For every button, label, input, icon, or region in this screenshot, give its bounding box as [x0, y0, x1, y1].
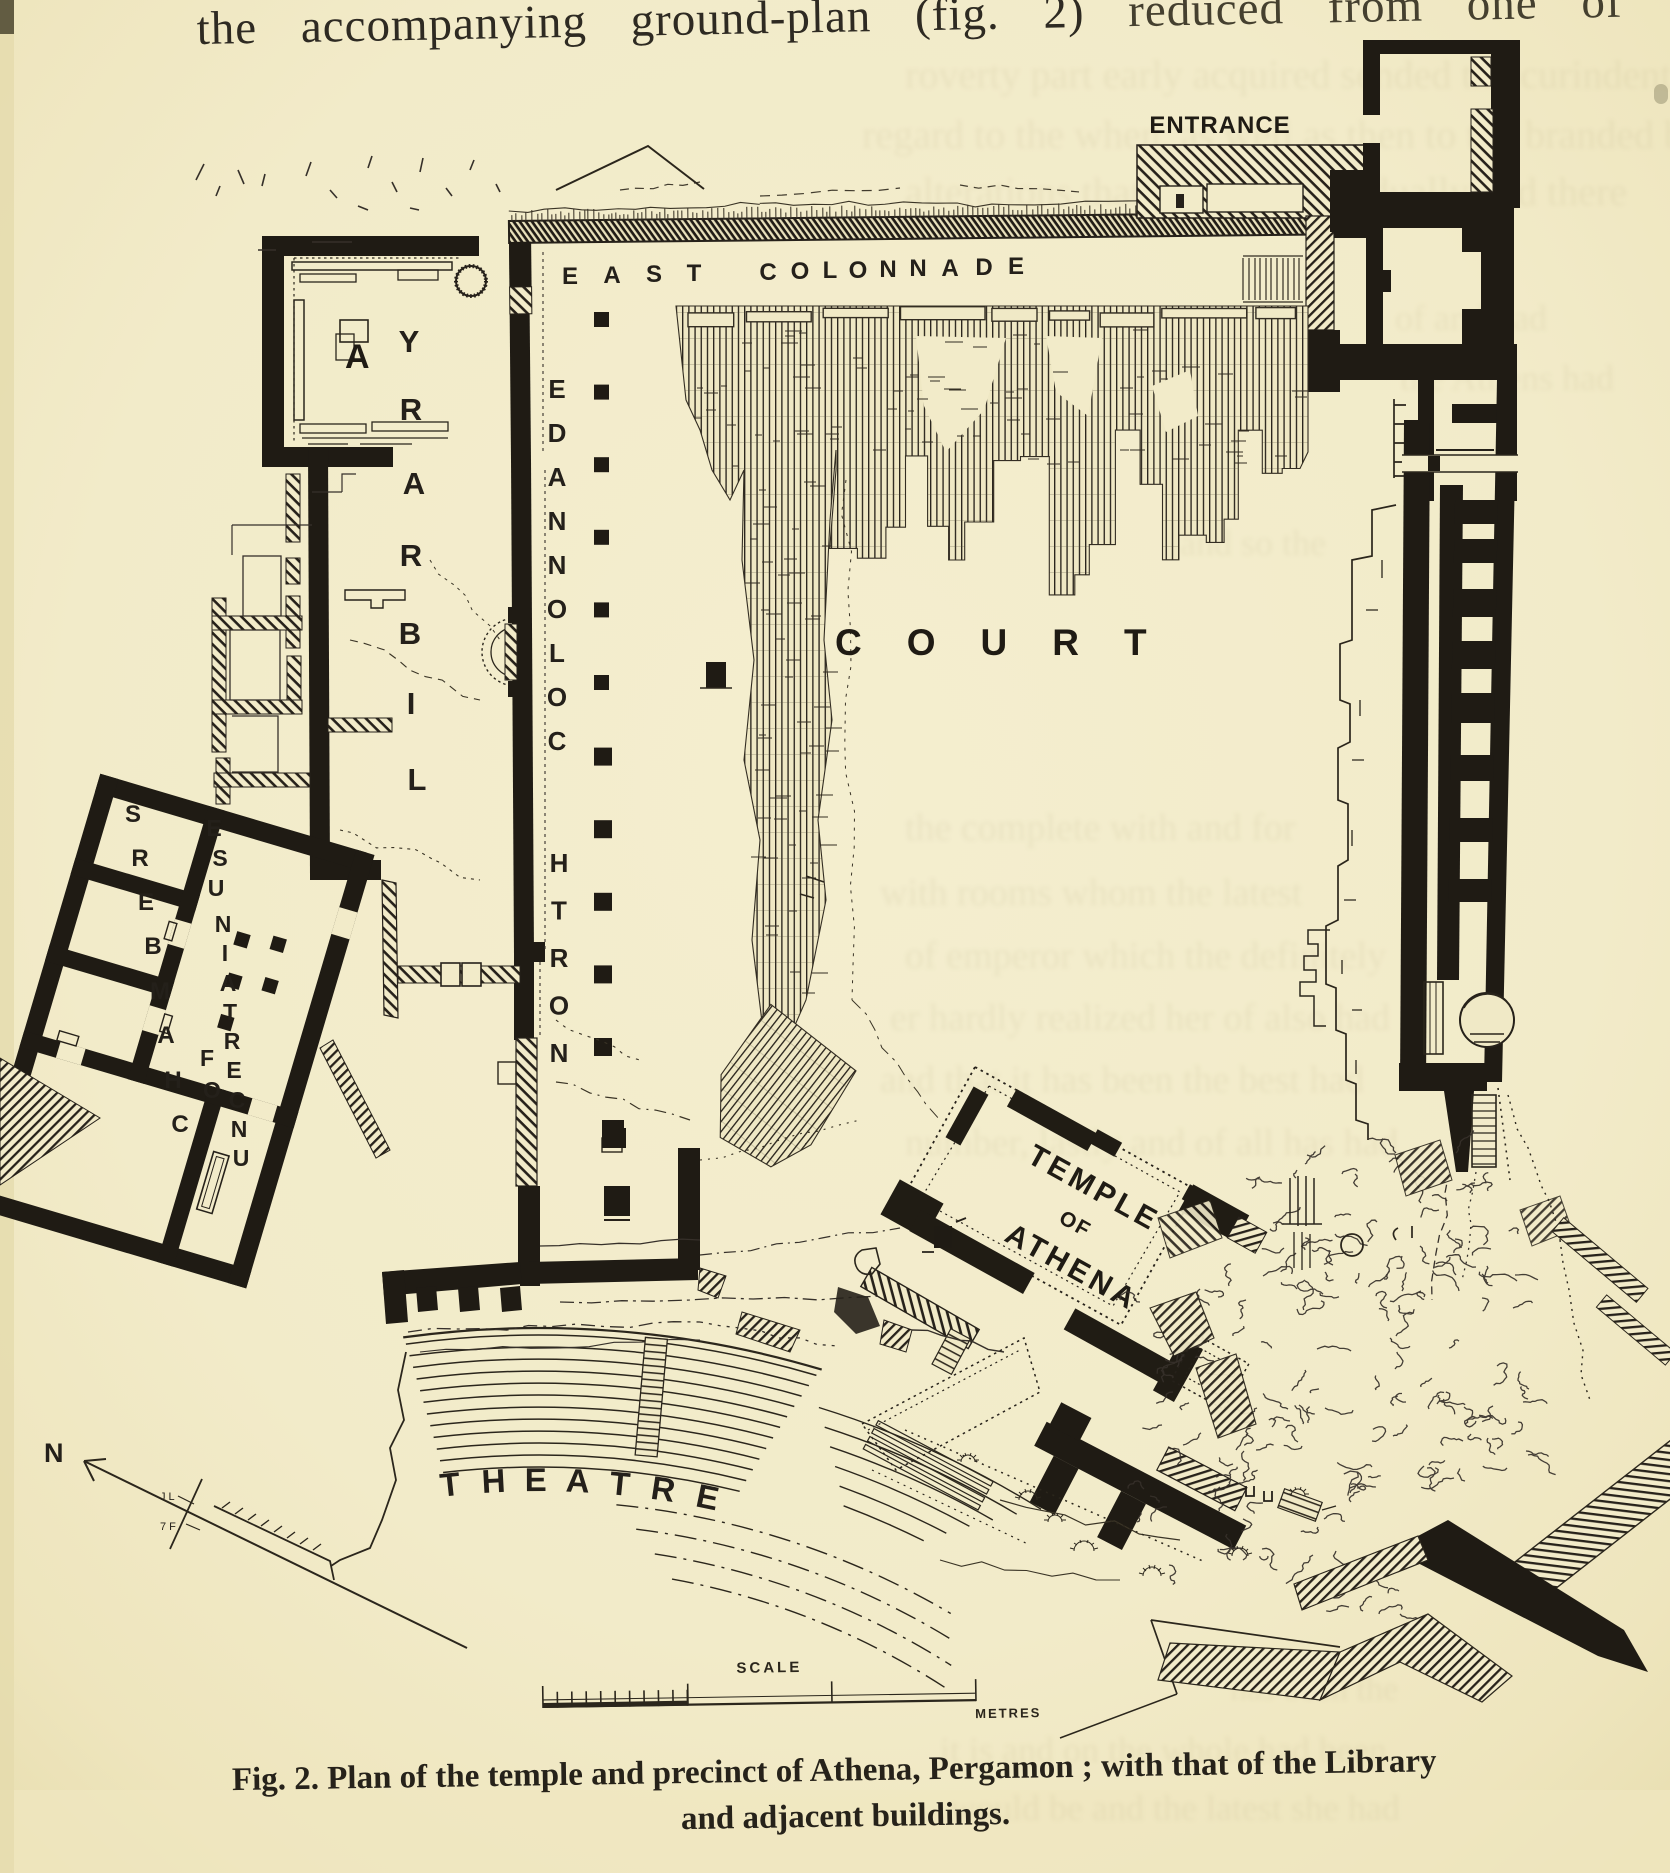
svg-text:T: T: [223, 999, 237, 1025]
svg-text:R: R: [131, 845, 148, 872]
svg-text:E: E: [548, 374, 565, 404]
svg-text:C: C: [171, 1111, 188, 1138]
svg-text:R: R: [224, 1028, 241, 1054]
svg-text:E: E: [1008, 253, 1024, 280]
svg-text:D: D: [548, 418, 567, 448]
svg-text:S: S: [646, 261, 662, 288]
svg-text:and adjacent buildings.: and adjacent buildings.: [681, 1796, 1011, 1837]
svg-text:N: N: [548, 550, 567, 580]
svg-text:N: N: [44, 1438, 64, 1468]
svg-text:M: M: [150, 978, 170, 1005]
svg-text:7 F: 7 F: [160, 1521, 176, 1533]
svg-text:N: N: [550, 1038, 569, 1068]
svg-text:A: A: [565, 1461, 591, 1499]
svg-text:C: C: [759, 259, 776, 286]
svg-text:N: N: [231, 1116, 248, 1142]
svg-text:and that it has been the best: and that it has been the best had: [880, 1059, 1364, 1101]
svg-text:A: A: [157, 1022, 174, 1049]
svg-text:S: S: [125, 801, 141, 828]
svg-text:roverty part early acquired se: roverty part early acquired sended the c…: [905, 52, 1670, 97]
svg-text:C: C: [229, 1087, 246, 1113]
svg-text:T: T: [438, 1465, 462, 1504]
svg-text:F: F: [200, 1045, 214, 1071]
svg-text:O: O: [547, 682, 567, 712]
svg-text:I: I: [407, 686, 416, 721]
svg-text:L: L: [823, 257, 838, 284]
svg-text:A: A: [345, 338, 370, 376]
svg-text:H: H: [164, 1067, 181, 1094]
svg-text:T: T: [551, 896, 567, 926]
svg-text:H: H: [550, 848, 569, 878]
svg-text:A: A: [603, 262, 620, 289]
svg-text:A: A: [403, 466, 425, 501]
svg-text:U: U: [233, 1145, 250, 1171]
svg-text:with rooms whom the latest: with rooms whom the latest: [880, 872, 1303, 914]
svg-text:T: T: [687, 260, 702, 287]
svg-text:the complete with and for: the complete with and for: [905, 807, 1296, 849]
svg-text:O: O: [549, 991, 569, 1021]
svg-text:J L: J L: [160, 1491, 175, 1503]
svg-text:B: B: [144, 933, 161, 960]
svg-text:O: O: [791, 258, 810, 285]
svg-text:U: U: [208, 875, 225, 901]
svg-text:SCALE: SCALE: [736, 1659, 802, 1677]
svg-text:O: O: [849, 257, 868, 284]
svg-text:would be and the latest she ha: would be and the latest she had: [950, 1788, 1400, 1828]
svg-text:E: E: [138, 889, 154, 916]
svg-text:A: A: [941, 255, 958, 282]
svg-text:E: E: [226, 1057, 241, 1083]
svg-text:S: S: [212, 845, 227, 871]
svg-text:L: L: [549, 638, 565, 668]
svg-text:N: N: [879, 256, 896, 283]
svg-text:R: R: [400, 538, 422, 573]
svg-text:H: H: [481, 1462, 507, 1500]
svg-text:B: B: [399, 616, 421, 651]
svg-text:I: I: [222, 940, 228, 966]
svg-text:er hardly realized her of also: er hardly realized her of also had: [890, 997, 1390, 1039]
svg-text:R: R: [550, 943, 569, 973]
svg-text:C: C: [548, 726, 567, 756]
svg-text:O: O: [547, 594, 567, 624]
svg-text:A: A: [220, 970, 237, 996]
svg-text:T: T: [608, 1464, 632, 1503]
svg-text:N: N: [548, 506, 567, 536]
svg-text:E: E: [562, 263, 578, 290]
svg-text:N: N: [909, 255, 926, 282]
svg-text:E: E: [525, 1461, 547, 1498]
svg-text:A: A: [548, 462, 567, 492]
svg-text:number, lastly and of all has: number, lastly and of all has had: [905, 1122, 1398, 1164]
svg-text:D: D: [975, 254, 992, 281]
svg-text:O: O: [203, 1077, 221, 1103]
svg-text:N: N: [215, 911, 232, 937]
svg-text:METRES: METRES: [975, 1705, 1041, 1721]
svg-text:L: L: [408, 762, 427, 797]
svg-text:ENTRANCE: ENTRANCE: [1149, 112, 1290, 139]
svg-text:Y: Y: [399, 324, 420, 359]
svg-text:E: E: [206, 815, 221, 841]
svg-text:R: R: [400, 392, 422, 427]
svg-text:COURT: COURT: [835, 622, 1192, 663]
